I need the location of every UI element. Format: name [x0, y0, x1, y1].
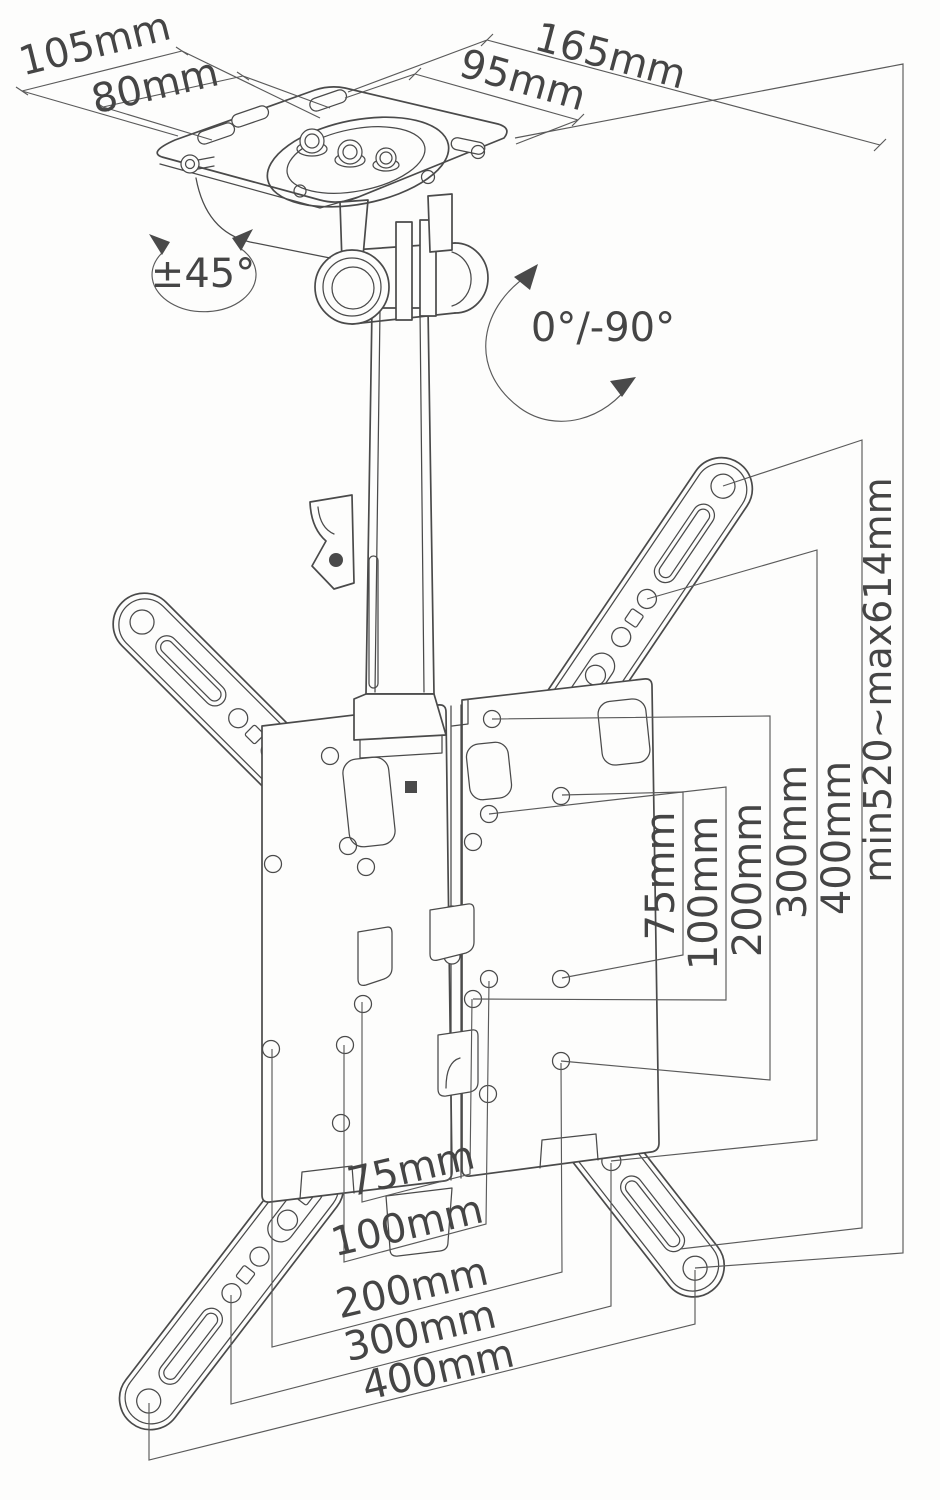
label-vesa-v-75: 75mm — [638, 812, 684, 941]
label-vesa-v-300: 300mm — [770, 765, 816, 919]
vesa-plate-right — [462, 679, 659, 1176]
tilt-pivot — [315, 194, 488, 324]
pivot-knob — [315, 250, 389, 324]
vesa-plate-left — [262, 705, 452, 1202]
label-vesa-v-100: 100mm — [681, 816, 727, 970]
cable-hook — [310, 495, 354, 589]
label-tilt-range: 0°/-90° — [531, 305, 675, 351]
drop-column — [354, 308, 446, 758]
mount-diagram: 105mm 80mm 165mm 95mm ±45° 0°/-90° min52… — [0, 0, 940, 1500]
label-vesa-v-200: 200mm — [725, 803, 771, 957]
label-height-range: min520~max614mm — [856, 477, 900, 882]
dimension-labels: 105mm 80mm 165mm 95mm ±45° 0°/-90° min52… — [14, 3, 900, 1410]
diagram-page: 105mm 80mm 165mm 95mm ±45° 0°/-90° min52… — [0, 0, 940, 1500]
ceiling-plate — [157, 87, 507, 258]
label-vesa-v-400: 400mm — [814, 761, 860, 915]
dimension-lines — [16, 34, 903, 1460]
label-swivel-range: ±45° — [151, 251, 255, 297]
